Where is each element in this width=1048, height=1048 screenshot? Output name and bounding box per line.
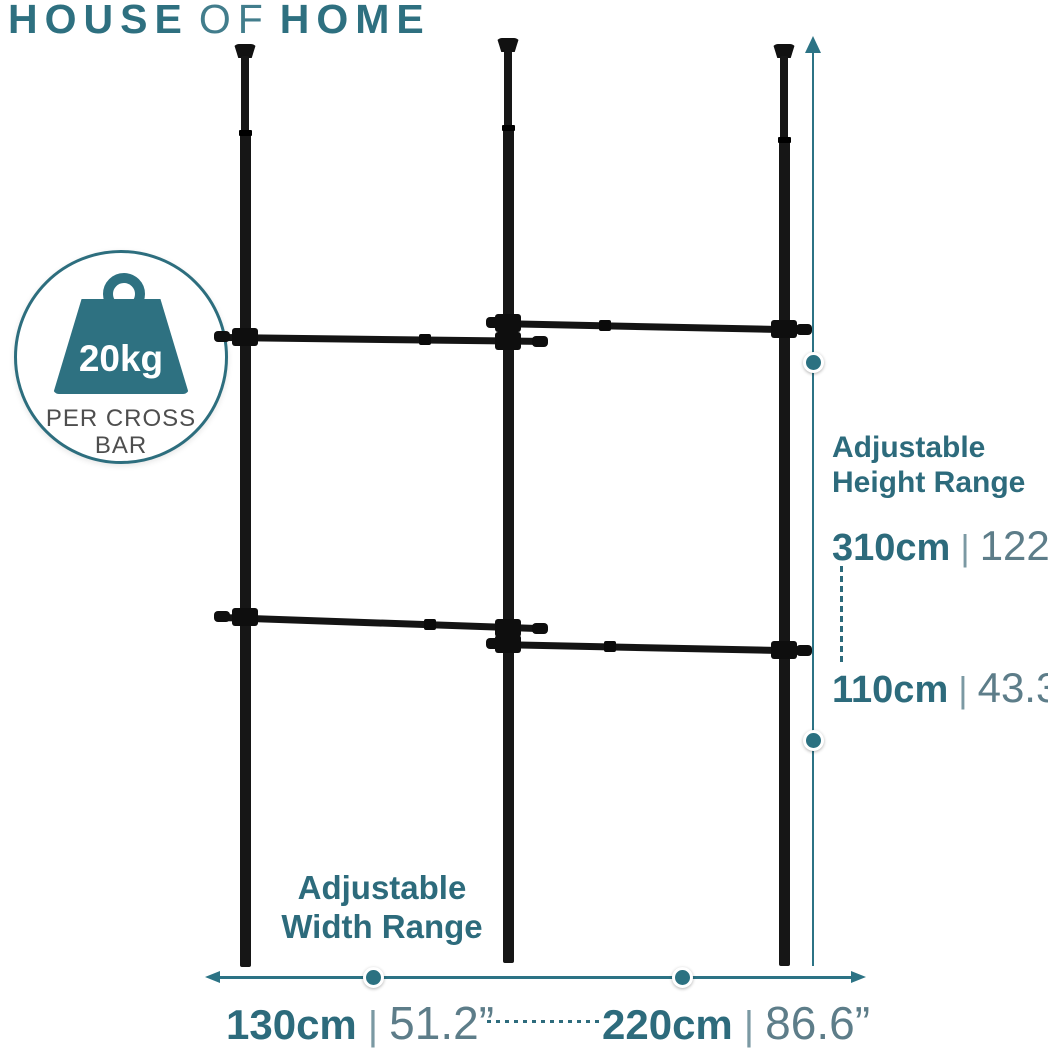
width-range-title-line2: Width Range [232, 907, 532, 946]
height-min-cm: 110cm [832, 669, 948, 712]
height-min-separator: | [958, 669, 967, 711]
crossbar-upper-left-end-cap [214, 331, 230, 342]
pole-right-joint [778, 137, 791, 143]
pole-right-lower-section [779, 140, 790, 966]
width-right-measurement: 220cm | 86.6” [602, 996, 870, 1048]
width-range-title-line1: Adjustable [232, 868, 532, 907]
brand-word-of: OF [199, 0, 270, 42]
horizontal-measure-arrow-left-icon [205, 971, 220, 983]
width-marker-dot-right [672, 967, 693, 988]
crossbar-lower-left-right-end-cap [532, 623, 548, 634]
pole-left-lower-section [240, 133, 251, 967]
crossbar-upper-left-clamp [232, 328, 258, 346]
height-marker-dot-bottom [803, 730, 824, 751]
horizontal-measure-line [219, 976, 851, 979]
height-max-inches: 122” [980, 522, 1048, 570]
crossbar-lower-right [494, 641, 806, 655]
crossbar-upper-left [222, 334, 540, 345]
height-min-measurement: 110cm | 43.3” [832, 664, 1048, 712]
pole-middle-lower-section [503, 128, 514, 963]
width-left-separator: | [368, 1004, 378, 1048]
height-max-cm: 310cm [832, 527, 950, 570]
width-right-separator: | [744, 1004, 754, 1048]
crossbar-lower-left [222, 614, 540, 632]
width-left-cm: 130cm [226, 1001, 357, 1048]
weight-capacity-badge: 20kg PER CROSS BAR [14, 250, 228, 464]
pole-left-joint [239, 130, 252, 136]
crossbar-lower-right-adjuster [604, 641, 616, 652]
crossbar-upper-right-left-clamp [495, 314, 521, 332]
crossbar-lower-left-clamp [232, 608, 258, 626]
crossbar-lower-right-left-clamp [495, 635, 521, 653]
crossbar-upper-right-right-clamp [771, 320, 797, 338]
width-left-inches: 51.2” [389, 996, 494, 1048]
crossbar-lower-left-adjuster [424, 619, 436, 630]
crossbar-lower-left-end-cap [214, 611, 230, 622]
height-max-separator: | [960, 527, 969, 569]
crossbar-lower-right-end-cap-right [796, 645, 812, 656]
height-max-measurement: 310cm | 122” [832, 522, 1048, 570]
height-marker-dot-top [803, 352, 824, 373]
weight-capacity-value: 20kg [17, 338, 225, 380]
caption-line-2: BAR [17, 432, 225, 459]
weight-capacity-caption: PER CROSS BAR [17, 405, 225, 459]
height-min-inches: 43.3” [978, 664, 1048, 712]
crossbar-upper-left-adjuster [419, 334, 431, 345]
crossbar-upper-left-right-end-cap [532, 336, 548, 347]
height-range-title: Adjustable Height Range [832, 430, 1025, 500]
pole-left-upper-section [241, 56, 249, 133]
width-right-cm: 220cm [602, 1001, 733, 1048]
horizontal-measure-arrow-right-icon [851, 971, 866, 983]
crossbar-upper-right-adjuster [599, 320, 611, 331]
height-range-title-line1: Adjustable [832, 430, 1025, 465]
height-range-dotted-connector [840, 566, 843, 662]
width-range-dotted-connector [487, 1020, 599, 1023]
vertical-measure-line [812, 52, 814, 966]
pole-middle-upper-section [504, 50, 512, 128]
product-infographic: HOUSEOFHOME 20kg PER CROSS BAR [0, 0, 1048, 1048]
brand-word-house: HOUSE [8, 0, 189, 42]
width-marker-dot-left [363, 967, 384, 988]
height-range-title-line2: Height Range [832, 465, 1025, 500]
crossbar-lower-right-right-clamp [771, 641, 797, 659]
brand-word-home: HOME [280, 0, 431, 42]
crossbar-upper-right [494, 320, 806, 334]
caption-line-1: PER CROSS [17, 405, 225, 432]
crossbar-upper-left-right-clamp [495, 332, 521, 350]
pole-right-upper-section [780, 56, 788, 140]
pole-middle-joint [502, 125, 515, 131]
brand-logo: HOUSEOFHOME [8, 0, 431, 43]
vertical-measure-arrow-icon [805, 36, 821, 53]
width-right-inches: 86.6” [765, 996, 870, 1048]
crossbar-upper-right-end-cap-right [796, 324, 812, 335]
width-range-title: Adjustable Width Range [232, 868, 532, 946]
width-left-measurement: 130cm | 51.2” [226, 996, 494, 1048]
